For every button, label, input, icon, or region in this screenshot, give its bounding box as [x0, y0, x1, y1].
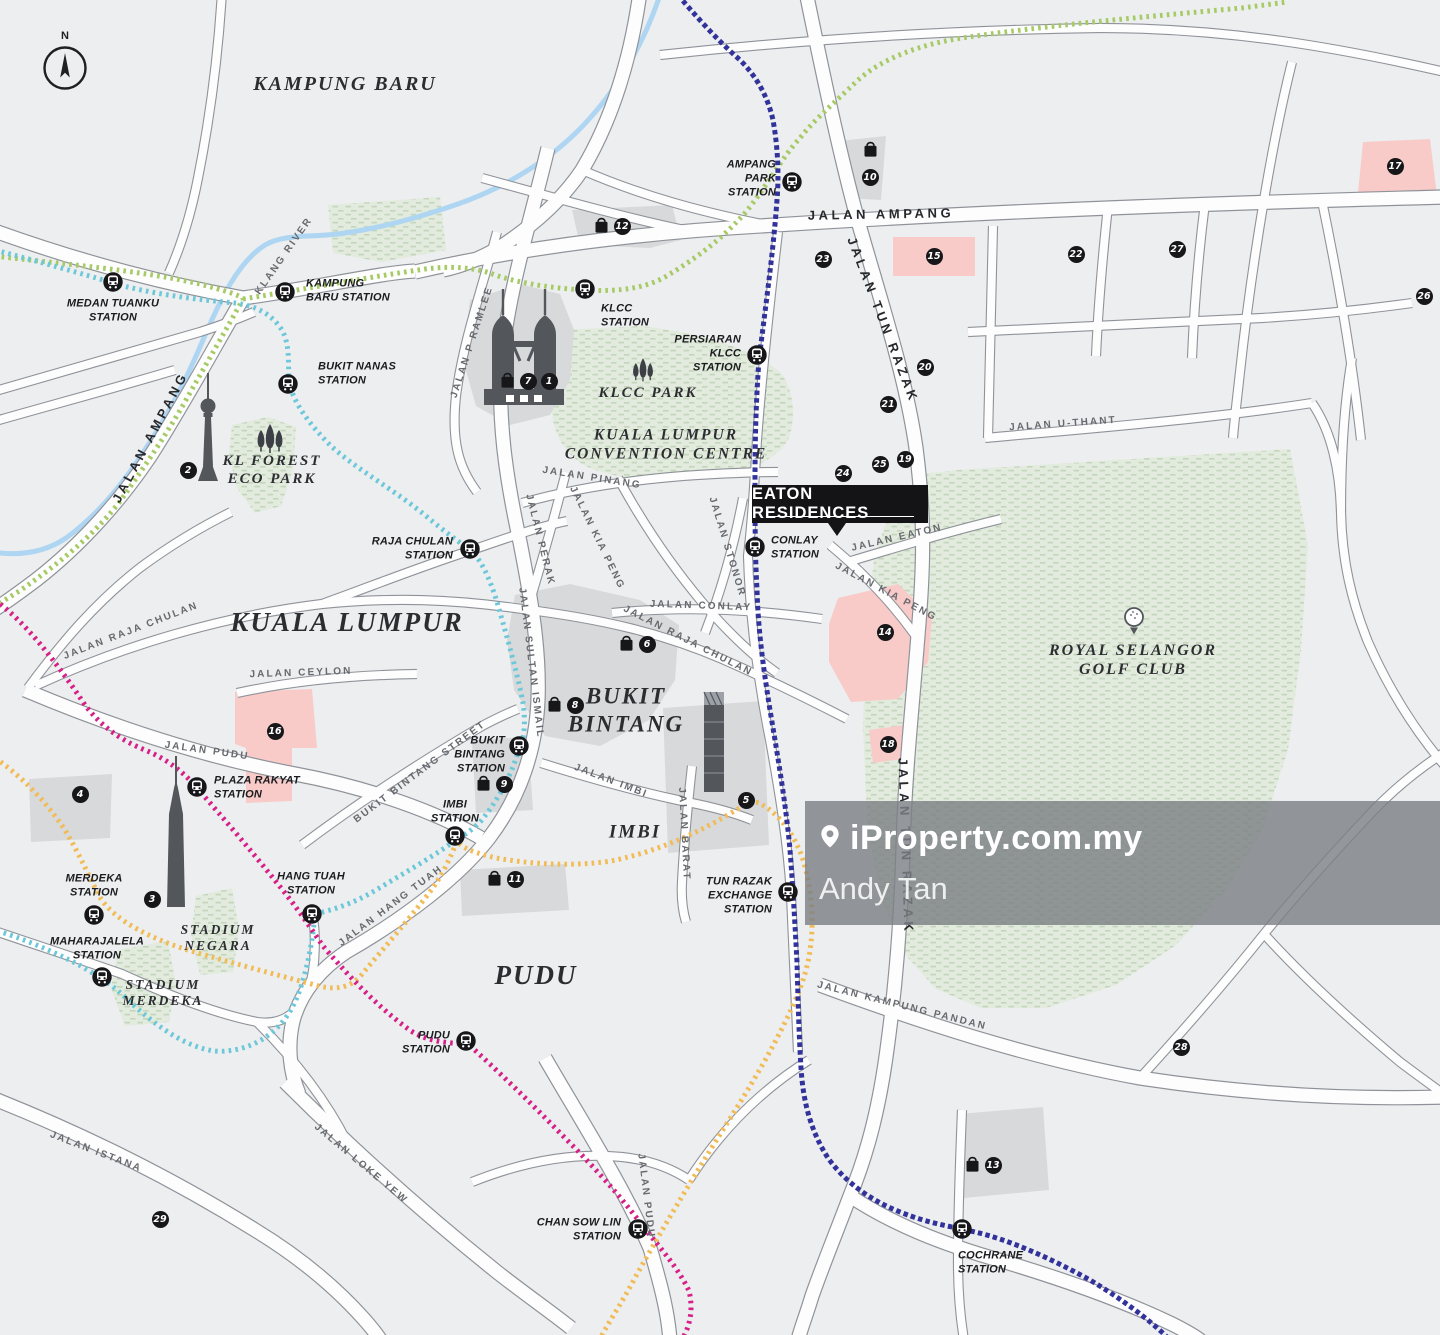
area-label-stadium-merdeka: STADIUMMERDEKA	[123, 977, 204, 1009]
train-station-icon	[782, 172, 802, 192]
map-marker-4[interactable]: 4	[72, 786, 89, 803]
area-label-klcc-park: KLCC PARK	[599, 384, 698, 402]
station-label-conlay: CONLAYSTATION	[771, 534, 819, 562]
marker-number: 14	[878, 627, 891, 638]
shopping-bag-icon	[619, 634, 634, 653]
marker-number: 20	[918, 362, 931, 373]
train-station-icon	[187, 777, 207, 797]
station-label-maharajalela: MAHARAJALELASTATION	[50, 935, 144, 963]
area-label-kampung-baru: KAMPUNG BARU	[253, 72, 436, 96]
watermark-agent-name: Andy Tan	[819, 871, 948, 907]
train-station-icon	[275, 282, 295, 302]
marker-number: 6	[644, 639, 651, 650]
station-medan-tuanku[interactable]	[103, 272, 123, 292]
map-marker-20[interactable]: 20	[917, 359, 934, 376]
road-label-jalan-loke-yew: JALAN LOKE YEW	[312, 1122, 410, 1207]
marker-number: 7	[525, 376, 532, 387]
property-callout-label: EATON RESIDENCES	[752, 485, 928, 523]
road-label-jalan-hang-tuah: JALAN HANG TUAH	[337, 863, 446, 949]
train-station-icon	[778, 882, 798, 902]
station-kampung-baru[interactable]	[275, 282, 295, 302]
station-conlay[interactable]	[745, 537, 765, 557]
road-label-jalan-tun-razak: JALAN TUN RAZAK	[844, 235, 921, 405]
station-label-cochrane: COCHRANESTATION	[958, 1249, 1023, 1277]
property-callout[interactable]: EATON RESIDENCES	[752, 485, 928, 523]
marker-number: 13	[986, 1160, 999, 1171]
map-marker-14[interactable]: 14	[877, 624, 894, 641]
map-marker-25[interactable]: 25	[872, 456, 889, 473]
train-station-icon	[460, 539, 480, 559]
train-station-icon	[103, 272, 123, 292]
road-label-jalan-kia-peng: JALAN KIA PENG	[567, 485, 627, 592]
road-label-jalan-pinang: JALAN PINANG	[542, 465, 643, 492]
road-label-jalan-ampang: JALAN AMPANG	[808, 205, 955, 223]
marker-number: 19	[898, 454, 911, 465]
map-overlay: MEDAN TUANKUSTATIONKAMPUNGBARU STATIONBU…	[0, 0, 1440, 1335]
shopping-bag-icon	[863, 140, 878, 159]
marker-number: 18	[881, 739, 894, 750]
road-label-jalan-kampung-pandan: JALAN KAMPUNG PANDAN	[816, 980, 988, 1033]
map-marker-11[interactable]: 11	[507, 871, 524, 888]
train-station-icon	[84, 905, 104, 925]
station-label-persiaran-klcc: PERSIARANKLCCSTATION	[674, 333, 741, 374]
area-label-imbi: IMBI	[609, 822, 661, 845]
station-hang-tuah[interactable]	[302, 904, 322, 924]
shopping-bag-icon	[547, 695, 562, 714]
property-callout-pointer	[828, 523, 846, 536]
area-label-kl-fore-st-eco-park: KL FORE­STECO PARK	[223, 452, 322, 488]
marker-number: 26	[1417, 291, 1430, 302]
road-label-jalan-perak: JALAN PERAK	[523, 493, 556, 587]
station-label-pudu: PUDUSTATION	[402, 1029, 450, 1057]
map-marker-5[interactable]: 5	[738, 792, 755, 809]
road-label-jalan-sultan-ismail: JALAN SULTAN ISMAIL	[516, 587, 545, 739]
station-label-bukit-nanas: BUKIT NANASSTATION	[318, 360, 396, 388]
map-marker-24[interactable]: 24	[835, 465, 852, 482]
station-merdeka[interactable]	[84, 905, 104, 925]
marker-number: 23	[816, 254, 829, 265]
train-station-icon	[445, 826, 465, 846]
marker-number: 10	[863, 172, 876, 183]
road-label-jalan-p-ramlee: JALAN P RAMLEE	[449, 285, 496, 400]
map-marker-21[interactable]: 21	[880, 396, 897, 413]
map-canvas: MEDAN TUANKUSTATIONKAMPUNGBARU STATIONBU…	[0, 0, 1440, 1335]
map-marker-6[interactable]: 6	[639, 636, 656, 653]
marker-number: 17	[1388, 161, 1401, 172]
marker-number: 2	[185, 465, 192, 476]
map-marker-10[interactable]: 10	[862, 169, 879, 186]
compass-north-label: N	[61, 30, 69, 42]
area-label-kuala-lumpur: KUALA LUMPUR	[230, 606, 463, 638]
marker-number: 29	[153, 1214, 166, 1225]
marker-number: 4	[77, 789, 84, 800]
shopping-bag-icon	[594, 216, 609, 235]
station-bukit-nanas[interactable]	[278, 374, 298, 394]
station-label-imbi: IMBISTATION	[431, 798, 479, 826]
train-station-icon	[302, 904, 322, 924]
station-label-chan-sow-lin: CHAN SOW LINSTATION	[537, 1216, 621, 1244]
road-label-jalan-eaton: JALAN EATON	[850, 522, 943, 554]
area-label-stadium-negara: STADIUMNEGARA	[181, 922, 256, 954]
station-label-merdeka: MERDEKASTATION	[65, 872, 122, 900]
shopping-bag-icon	[476, 774, 491, 793]
map-marker-13[interactable]: 13	[985, 1157, 1002, 1174]
marker-number: 15	[927, 251, 940, 262]
marker-number: 3	[149, 894, 156, 905]
station-cochrane[interactable]	[952, 1219, 972, 1239]
marker-number: 11	[508, 874, 521, 885]
station-label-raja-chulan: RAJA CHULANSTATION	[372, 535, 453, 563]
marker-number: 25	[873, 459, 886, 470]
station-pudu[interactable]	[456, 1031, 476, 1051]
watermark-banner: iProperty.com.my Andy Tan	[805, 801, 1440, 925]
road-label-jalan-pudu: JALAN PUDU	[164, 740, 250, 763]
station-label-plaza-rakyat: PLAZA RAKYATSTATION	[214, 774, 300, 802]
station-label-medan-tuanku: MEDAN TUANKUSTATION	[67, 297, 159, 325]
station-imbi[interactable]	[445, 826, 465, 846]
map-marker-1[interactable]: 1	[541, 373, 558, 390]
marker-number: 24	[836, 468, 849, 479]
train-station-icon	[92, 967, 112, 987]
marker-number: 27	[1170, 244, 1183, 255]
train-station-icon	[278, 374, 298, 394]
marker-number: 22	[1069, 249, 1082, 260]
map-marker-28[interactable]: 28	[1173, 1039, 1190, 1056]
road-label-jalan-istana: JALAN ISTANA	[48, 1129, 143, 1174]
map-marker-26[interactable]: 26	[1416, 288, 1433, 305]
road-label-jalan-kia-peng: JALAN KIA PENG	[833, 561, 938, 624]
train-station-icon	[509, 736, 529, 756]
station-persiaran-klcc[interactable]	[747, 345, 767, 365]
shopping-bag-icon	[965, 1155, 980, 1174]
map-marker-12[interactable]: 12	[614, 218, 631, 235]
area-label-royal-selangor-golf-club: ROYAL SELANGORGOLF CLUB	[1049, 641, 1217, 679]
marker-number: 28	[1174, 1042, 1187, 1053]
area-label-pudu: PUDU	[495, 959, 578, 991]
marker-number: 21	[881, 399, 894, 410]
watermark-brand: iProperty.com.my	[850, 819, 1143, 858]
marker-number: 9	[501, 779, 508, 790]
train-station-icon	[745, 537, 765, 557]
road-label-jalan-ampang: JALAN AMPANG	[109, 369, 191, 505]
station-label-hang-tuah: HANG TUAHSTATION	[277, 870, 345, 898]
marker-number: 1	[546, 376, 553, 387]
map-marker-2[interactable]: 2	[180, 462, 197, 479]
train-station-icon	[456, 1031, 476, 1051]
station-label-ampang-park: AMPANGPARKSTATION	[727, 158, 776, 199]
map-marker-19[interactable]: 19	[897, 451, 914, 468]
station-label-klcc: KLCCSTATION	[601, 302, 649, 330]
station-klcc[interactable]	[575, 279, 595, 299]
train-station-icon	[575, 279, 595, 299]
shopping-bag-icon	[487, 869, 502, 888]
train-station-icon	[952, 1219, 972, 1239]
station-raja-chulan[interactable]	[460, 539, 480, 559]
train-station-icon	[747, 345, 767, 365]
map-marker-27[interactable]: 27	[1169, 241, 1186, 258]
road-label-jalan-conlay: JALAN CONLAY	[650, 599, 753, 614]
station-maharajalela[interactable]	[92, 967, 112, 987]
marker-number: 16	[268, 726, 281, 737]
map-marker-18[interactable]: 18	[880, 736, 897, 753]
area-label-bukit-bintang: BUKITBINTANG	[568, 682, 684, 737]
marker-number: 5	[743, 795, 750, 806]
location-pin-icon	[817, 821, 843, 856]
area-label-kuala-lumpur-convention-centre: KUALA LUMPURCONVENTION CENTRE	[565, 426, 767, 463]
map-marker-7[interactable]: 7	[520, 373, 537, 390]
road-label-jalan-ceylon: JALAN CEYLON	[249, 666, 352, 681]
station-plaza-rakyat[interactable]	[187, 777, 207, 797]
station-tun-razak-exchange[interactable]	[778, 882, 798, 902]
map-marker-16[interactable]: 16	[267, 723, 284, 740]
shopping-bag-icon	[500, 371, 515, 390]
road-label-jalan-barat: JALAN BARAT	[676, 787, 692, 881]
station-ampang-park[interactable]	[782, 172, 802, 192]
map-marker-22[interactable]: 22	[1068, 246, 1085, 263]
map-marker-29[interactable]: 29	[152, 1211, 169, 1228]
station-label-tun-razak-exchange: TUN RAZAKEXCHANGESTATION	[706, 875, 772, 916]
map-marker-3[interactable]: 3	[144, 891, 161, 908]
station-label-kampung-baru: KAMPUNGBARU STATION	[306, 277, 390, 305]
map-marker-17[interactable]: 17	[1387, 158, 1404, 175]
map-marker-9[interactable]: 9	[496, 776, 513, 793]
road-label-jalan-stonor: JALAN STONOR	[707, 496, 748, 599]
map-marker-15[interactable]: 15	[926, 248, 943, 265]
callout-underline	[766, 516, 914, 518]
road-label-jalan-raja-chulan: JALAN RAJA CHULAN	[62, 600, 200, 662]
station-bukit-bintang[interactable]	[509, 736, 529, 756]
marker-number: 12	[615, 221, 628, 232]
road-label-jalan-imbi: JALAN IMBI	[573, 762, 650, 800]
road-label-jalan-u-thant: JALAN U-THANT	[1009, 415, 1117, 433]
map-marker-23[interactable]: 23	[815, 251, 832, 268]
